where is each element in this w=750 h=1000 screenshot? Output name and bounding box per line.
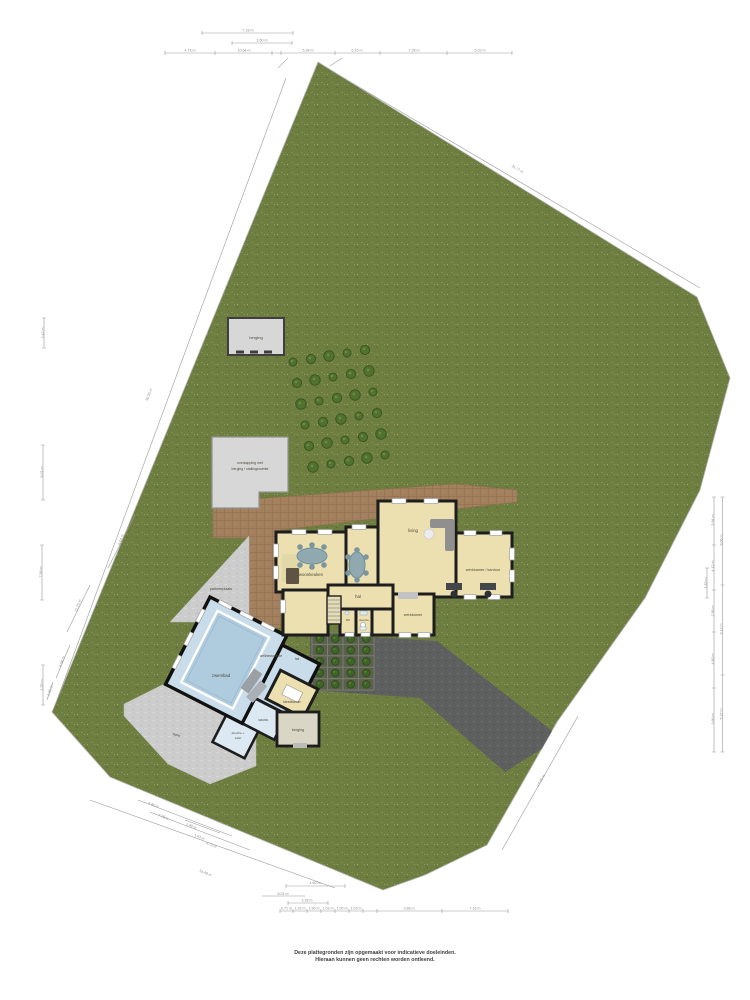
room-label-8: wellnessruimte xyxy=(260,654,283,658)
tree-icon xyxy=(344,456,353,465)
dim-label-27: 14.20 m xyxy=(536,774,546,787)
tree-icon xyxy=(289,358,297,366)
dim-label-8: 2.42 m xyxy=(41,328,45,339)
dim-label-23: 8.06 m xyxy=(720,535,724,546)
dim-label-28: 9.46 m xyxy=(148,801,160,809)
tree-icon xyxy=(362,453,372,463)
plant-icon xyxy=(347,658,355,666)
chair-icon xyxy=(297,544,303,550)
desk xyxy=(480,583,496,590)
room-label-10: kleedkamer xyxy=(283,700,301,704)
dim-label-21: 4.80 m xyxy=(711,654,715,665)
chair-icon xyxy=(321,562,327,568)
dim-label-31: 1.43 m xyxy=(194,833,206,841)
room-label-0: woonkeuken xyxy=(299,572,324,577)
tree-icon xyxy=(304,441,313,450)
plant-icon xyxy=(332,681,340,689)
tree-icon xyxy=(310,375,320,385)
tree-icon xyxy=(292,378,301,387)
tree-icon xyxy=(315,397,323,405)
tree-icon xyxy=(360,345,369,354)
tree-icon xyxy=(324,351,334,361)
tree-icon xyxy=(332,393,341,402)
room-label-12: douche + xyxy=(232,731,245,735)
plant-icon xyxy=(332,646,340,654)
chair-icon xyxy=(309,542,315,548)
plant-icon xyxy=(363,658,371,666)
dining-table-2 xyxy=(349,552,365,578)
room-bijkeuken xyxy=(283,590,328,635)
room-label-14: berging xyxy=(292,728,304,732)
plant-icon xyxy=(332,669,340,677)
room-label-4: werkkamer xyxy=(404,613,423,617)
garden-grass-area xyxy=(52,62,730,890)
room-kast xyxy=(372,609,393,635)
plant-icon xyxy=(363,681,371,689)
dim-label-10: 7.56 m xyxy=(39,567,43,578)
dim-label-22: 3.66 m xyxy=(711,714,715,725)
plant-icon xyxy=(332,635,340,643)
dim-label-29: 7.78 m xyxy=(158,813,170,821)
tree-icon xyxy=(372,408,381,417)
kitchen-island xyxy=(286,568,299,584)
dim-label-36: 3.28 m xyxy=(302,899,313,903)
dim-label-44: 7.16 m xyxy=(470,907,481,911)
dim-label-11: 1.55 m xyxy=(40,680,44,691)
tree-icon xyxy=(322,438,332,448)
plant-icon xyxy=(316,681,324,689)
room-label-3: hal xyxy=(355,594,361,599)
room-living xyxy=(378,501,456,597)
tree-icon xyxy=(350,390,360,400)
dim-label-26: 1.83 m xyxy=(704,578,708,589)
room-label-9: hal xyxy=(295,657,300,661)
dim-label-9: 8.01 m xyxy=(40,467,44,478)
plant-icon xyxy=(332,658,340,666)
chair-icon xyxy=(321,544,327,550)
plant-icon xyxy=(347,681,355,689)
desk xyxy=(446,583,462,590)
room-label-15: berging xyxy=(249,335,262,340)
disclaimer-line-1: Deze plattegronden zijn opgemaakt voor i… xyxy=(294,950,456,956)
tree-icon xyxy=(358,432,367,441)
site-plan-page: woonkeukenlivingwerkkamer / kantoorhalwe… xyxy=(0,0,750,1000)
dim-label-43: 3.88 m xyxy=(404,907,415,911)
room-label-2: werkkamer / kantoor xyxy=(466,568,501,572)
dim-label-37: 0.71 m xyxy=(281,907,292,911)
dim-label-32: 6.73 m xyxy=(206,841,218,849)
dim-label-0: 7.18 m xyxy=(243,29,254,33)
dim-label-4: 5.38 m xyxy=(303,49,314,53)
chair-icon xyxy=(345,554,351,560)
dim-label-16: 1.35 m xyxy=(46,685,54,697)
room-label-18: parkeerplaats xyxy=(210,587,232,591)
chair-icon xyxy=(363,570,369,576)
room-label-13: toilet xyxy=(235,736,242,740)
plant-icon xyxy=(347,646,355,654)
dim-label-40: 1.03 m xyxy=(323,907,334,911)
tree-icon xyxy=(329,373,337,381)
dim-label-38: 1.32 m xyxy=(295,907,306,911)
disclaimer-line-2: Hieraan kunnen geen rechten worden ontle… xyxy=(315,957,435,963)
chair-icon xyxy=(297,562,303,568)
plant-icon xyxy=(347,669,355,677)
tree-icon xyxy=(346,369,355,378)
room-label-11: sauna xyxy=(258,718,267,722)
dim-label-30: 1.40 m xyxy=(186,822,198,830)
chair-icon xyxy=(363,554,369,560)
dim-label-1: 3.60 m xyxy=(257,39,268,43)
dim-label-17: 31.77 m xyxy=(511,164,524,174)
dim-label-25: 5.27 m xyxy=(720,709,724,720)
tree-icon xyxy=(343,349,351,357)
coffee-table xyxy=(424,529,434,539)
dim-label-5: 6.10 m xyxy=(352,49,363,53)
room-label-16: overkapping met xyxy=(237,461,263,465)
room-label-17: berging / stallingsruimte xyxy=(232,467,269,471)
vegetable-garden xyxy=(312,633,374,690)
plant-icon xyxy=(363,646,371,654)
sink xyxy=(360,611,367,615)
tree-icon xyxy=(355,412,363,420)
tree-icon xyxy=(341,436,349,444)
dim-label-18: 3.94 m xyxy=(711,515,715,526)
dim-label-24: 9.12 m xyxy=(720,624,724,635)
tree-icon xyxy=(381,451,389,459)
room-label-7: zwembad xyxy=(212,673,231,678)
tree-icon xyxy=(296,399,306,409)
boundary-gate-marks xyxy=(278,58,342,68)
tree-icon xyxy=(306,354,315,363)
dim-label-7: 5.02 m xyxy=(475,49,486,53)
dim-label-42: 1.03 m xyxy=(351,907,362,911)
dim-label-2: 4.71 m xyxy=(185,49,196,53)
tree-icon xyxy=(336,414,346,424)
plant-icon xyxy=(363,669,371,677)
dim-label-20: 2.95 m xyxy=(711,606,715,617)
tree-icon xyxy=(308,462,318,472)
dim-label-14: 12.75 m xyxy=(74,599,82,613)
dim-label-33: 19.48 m xyxy=(199,869,213,878)
plant-icon xyxy=(316,646,324,654)
tree-icon xyxy=(327,460,335,468)
chair-icon xyxy=(354,547,360,553)
tree-icon xyxy=(301,421,309,429)
tree-icon xyxy=(376,429,386,439)
washbasin xyxy=(345,611,349,615)
dim-label-6: 7.28 m xyxy=(409,49,420,53)
dim-label-41: 1.90 m xyxy=(337,907,348,911)
tree-icon xyxy=(364,366,374,376)
room-label-1: living xyxy=(408,528,418,533)
dim-label-3: 10.04 m xyxy=(238,49,251,53)
dim-label-15: 6.98 m xyxy=(58,656,66,668)
desk-chair xyxy=(451,591,458,598)
chair-icon xyxy=(345,570,351,576)
dim-label-39: 1.90 m xyxy=(309,907,320,911)
tree-icon xyxy=(318,417,327,426)
chair-icon xyxy=(309,564,315,570)
door-mat xyxy=(398,592,418,599)
dim-label-19: 4.12 m xyxy=(711,561,715,572)
chair-icon xyxy=(354,577,360,583)
tree-icon xyxy=(369,388,377,396)
desk-chair xyxy=(485,591,492,598)
dim-label-35: 8.01 m xyxy=(278,892,289,896)
dim-label-12: 36.55 m xyxy=(145,388,153,402)
sofa xyxy=(445,519,454,551)
site-plan-svg: woonkeukenlivingwerkkamer / kantoorhalwe… xyxy=(0,0,750,1000)
dining-table xyxy=(297,548,327,564)
room-label-5: wc xyxy=(346,618,350,622)
dim-label-34: 4.60 m xyxy=(310,881,321,885)
room-label-6: douche xyxy=(359,618,369,622)
